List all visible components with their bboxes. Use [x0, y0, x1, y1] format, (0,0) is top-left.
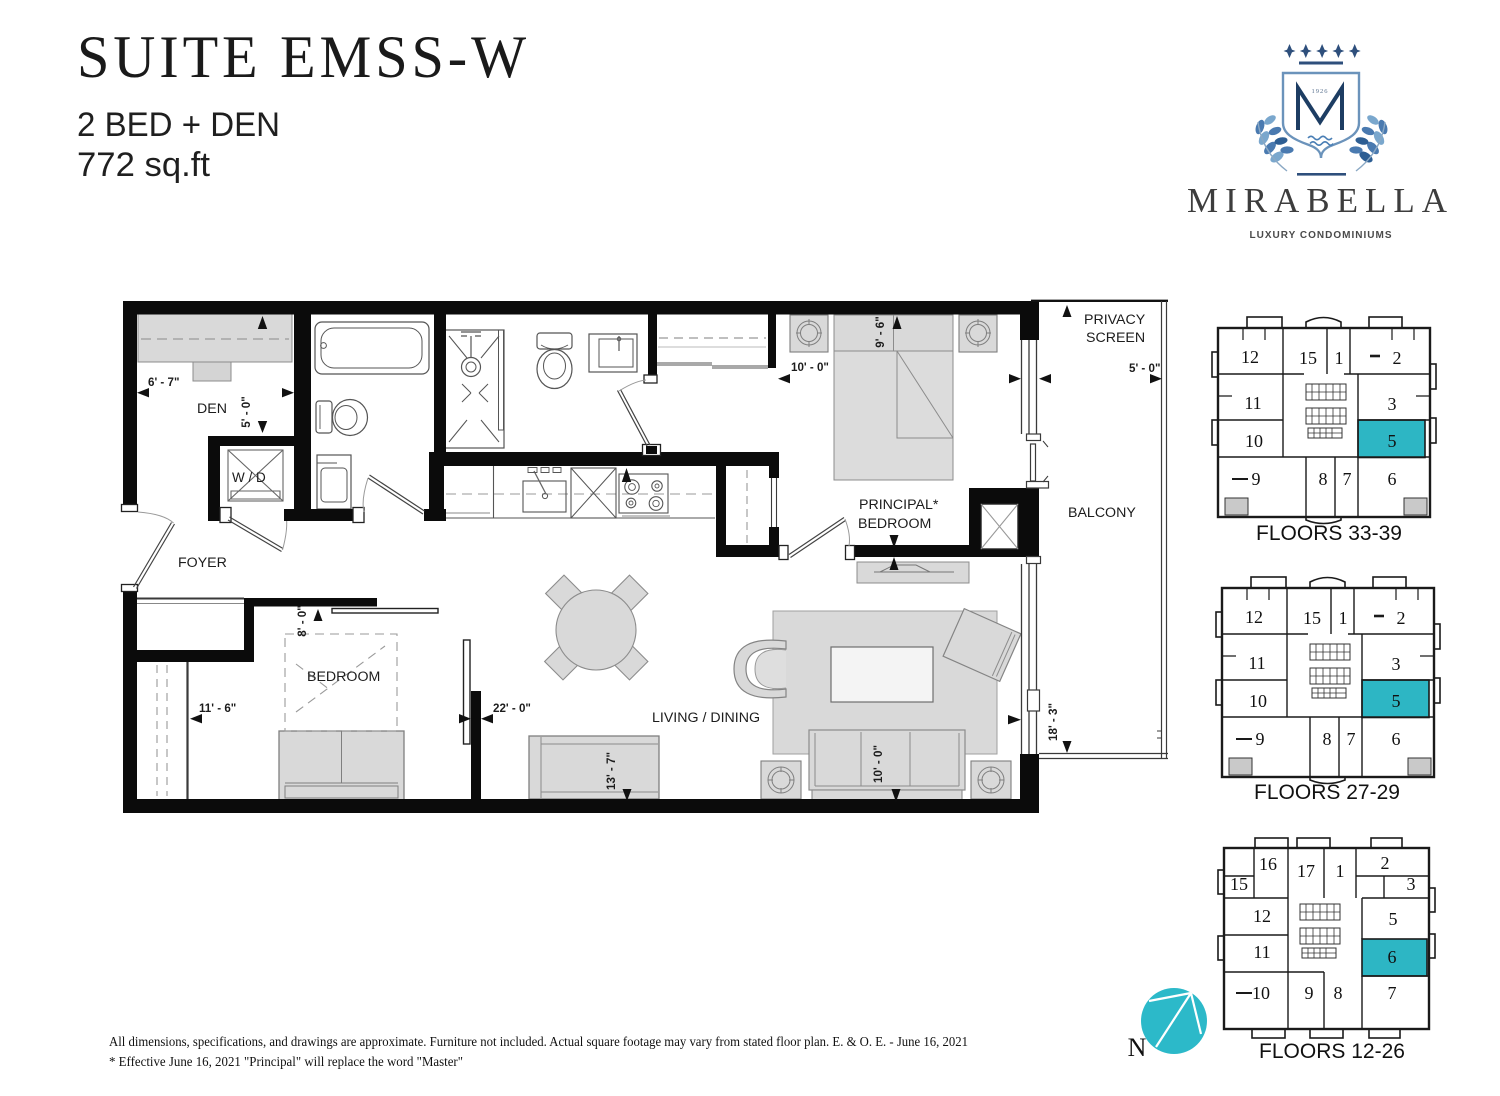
svg-text:8' - 0": 8' - 0" [296, 605, 309, 636]
svg-text:5' - 0": 5' - 0" [1129, 362, 1160, 375]
svg-text:18' - 3": 18' - 3" [1047, 703, 1060, 741]
svg-text:5' - 0": 5' - 0" [240, 396, 253, 427]
svg-text:PRIVACY: PRIVACY [1084, 312, 1146, 328]
svg-text:W / D: W / D [232, 470, 266, 485]
svg-text:10' - 0": 10' - 0" [791, 361, 829, 374]
svg-text:22' - 0": 22' - 0" [493, 702, 531, 715]
svg-text:10' - 0": 10' - 0" [872, 745, 885, 783]
svg-text:6' - 7": 6' - 7" [148, 376, 179, 389]
svg-text:DEN: DEN [197, 401, 227, 417]
svg-text:BALCONY: BALCONY [1068, 505, 1136, 521]
svg-text:1926: 1926 [1312, 88, 1329, 95]
svg-text:FLOORS 12-26: FLOORS 12-26 [1259, 1040, 1405, 1063]
svg-text:LIVING / DINING: LIVING / DINING [652, 710, 760, 726]
svg-text:9' - 6": 9' - 6" [874, 316, 887, 347]
svg-text:LUXURY CONDOMINIUMS: LUXURY CONDOMINIUMS [1250, 230, 1393, 241]
svg-text:MIRABELLA: MIRABELLA [1187, 181, 1451, 220]
svg-text:BEDROOM: BEDROOM [307, 669, 380, 685]
svg-text:N: N [1128, 1033, 1147, 1062]
svg-text:FLOORS 27-29: FLOORS 27-29 [1254, 781, 1400, 804]
svg-text:FOYER: FOYER [178, 555, 227, 571]
svg-text:13' - 7": 13' - 7" [605, 752, 618, 790]
svg-text:PRINCIPAL*: PRINCIPAL* [859, 497, 939, 513]
svg-text:SCREEN: SCREEN [1086, 330, 1145, 346]
svg-text:BEDROOM: BEDROOM [858, 516, 931, 532]
svg-text:772 sq.ft: 772 sq.ft [77, 146, 211, 184]
svg-text:FLOORS 33-39: FLOORS 33-39 [1256, 522, 1402, 545]
svg-text:2 BED + DEN: 2 BED + DEN [77, 106, 280, 144]
svg-text:All dimensions, specifications: All dimensions, specifications, and draw… [109, 1034, 968, 1049]
svg-text:11' - 6": 11' - 6" [199, 702, 236, 715]
svg-text:* Effective June 16, 2021 "Pri: * Effective June 16, 2021 "Principal" wi… [109, 1054, 463, 1069]
svg-text:SUITE EMSS-W: SUITE EMSS-W [77, 24, 530, 90]
